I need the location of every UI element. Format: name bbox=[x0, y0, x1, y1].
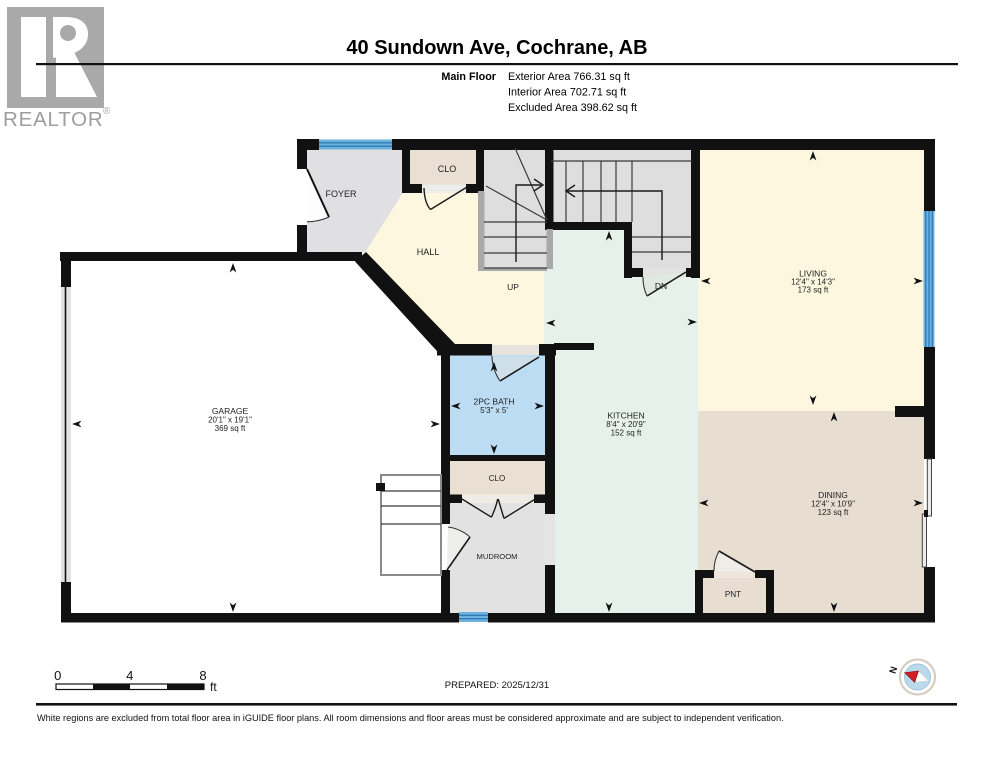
svg-text:0: 0 bbox=[54, 668, 61, 683]
svg-text:40 Sundown Ave, Cochrane, AB: 40 Sundown Ave, Cochrane, AB bbox=[346, 37, 647, 59]
svg-text:Exterior Area 766.31 sq ft: Exterior Area 766.31 sq ft bbox=[508, 71, 630, 83]
svg-text:®: ® bbox=[103, 106, 111, 117]
svg-text:GARAGE: GARAGE bbox=[212, 406, 249, 416]
svg-text:PNT: PNT bbox=[725, 590, 741, 599]
svg-text:Main Floor: Main Floor bbox=[441, 71, 496, 83]
svg-text:2PC BATH: 2PC BATH bbox=[474, 397, 515, 407]
svg-text:ft: ft bbox=[210, 680, 217, 694]
svg-text:152 sq ft: 152 sq ft bbox=[611, 429, 642, 438]
svg-text:369 sq ft: 369 sq ft bbox=[215, 424, 246, 433]
svg-text:Interior Area 702.71 sq ft: Interior Area 702.71 sq ft bbox=[508, 87, 626, 99]
svg-text:173 sq ft: 173 sq ft bbox=[798, 286, 829, 295]
svg-text:4: 4 bbox=[126, 668, 133, 683]
svg-text:DN: DN bbox=[655, 281, 667, 291]
svg-text:8: 8 bbox=[199, 668, 206, 683]
svg-text:White regions are excluded fro: White regions are excluded from total fl… bbox=[37, 713, 784, 723]
svg-text:CLO: CLO bbox=[489, 474, 505, 483]
svg-text:HALL: HALL bbox=[417, 247, 440, 257]
svg-text:CLO: CLO bbox=[438, 164, 457, 174]
svg-text:5'3" x 5': 5'3" x 5' bbox=[480, 406, 508, 415]
svg-text:PREPARED: 2025/12/31: PREPARED: 2025/12/31 bbox=[445, 680, 549, 691]
svg-text:KITCHEN: KITCHEN bbox=[607, 411, 644, 421]
svg-text:MUDROOM: MUDROOM bbox=[477, 552, 518, 561]
svg-text:UP: UP bbox=[507, 282, 519, 292]
svg-text:Excluded Area 398.62 sq ft: Excluded Area 398.62 sq ft bbox=[508, 102, 637, 114]
svg-text:REALTOR: REALTOR bbox=[3, 108, 104, 131]
svg-text:123 sq ft: 123 sq ft bbox=[818, 508, 849, 517]
svg-text:DINING: DINING bbox=[818, 490, 848, 500]
svg-text:FOYER: FOYER bbox=[325, 189, 357, 199]
